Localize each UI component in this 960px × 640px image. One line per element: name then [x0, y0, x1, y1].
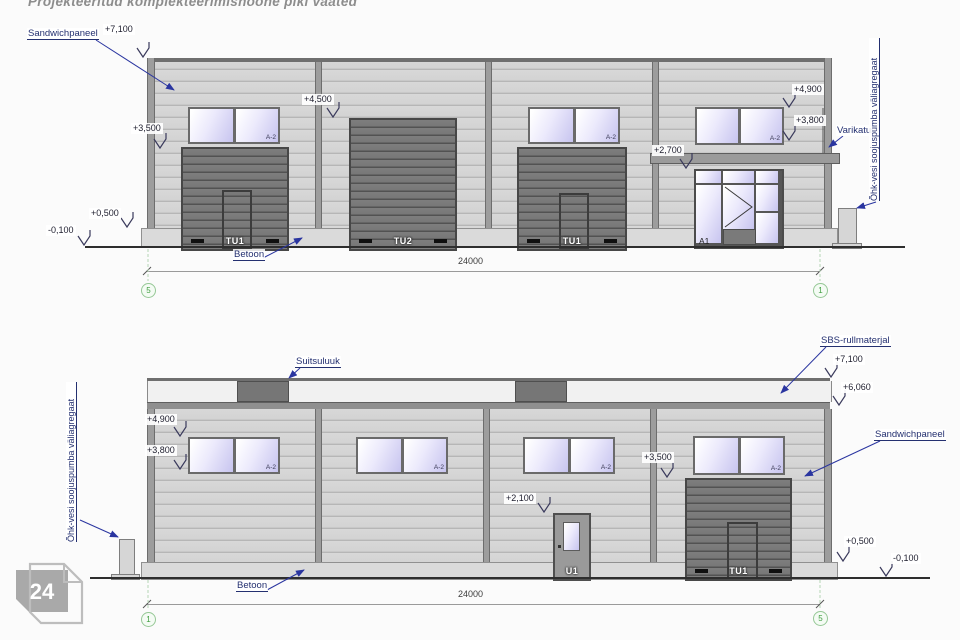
door-dash: [434, 239, 447, 243]
transom-pane: [756, 171, 778, 183]
door-handle: [558, 545, 561, 548]
door-dash: [695, 569, 708, 573]
entrance-a1: A1: [694, 169, 784, 249]
window: A-2: [188, 107, 280, 144]
window-pane: [190, 109, 233, 142]
window: A-2: [356, 437, 448, 474]
window-tag: A-2: [770, 135, 780, 142]
level-m0100: -0,100: [46, 225, 76, 236]
window-tag: A-2: [266, 464, 276, 471]
level-0500: +0,500: [89, 208, 121, 219]
heat-pump-unit: [838, 208, 857, 248]
window-pane: [190, 439, 233, 472]
door-dash: [527, 239, 540, 243]
corner-column: [147, 58, 155, 228]
level-4900: +4,900: [145, 414, 177, 425]
door-label: U1: [566, 566, 579, 576]
label-suitsuluuk: Suitsuluuk: [295, 356, 341, 368]
window: A-2: [188, 437, 280, 474]
door-u1: U1: [553, 513, 591, 581]
window-tag: A-2: [771, 465, 781, 472]
corner-column: [824, 58, 832, 228]
level-7100: +7,100: [103, 24, 135, 35]
level-3500: +3,500: [131, 123, 163, 134]
window-pane: [697, 109, 738, 143]
elevation-drawing-sheet: Projekteeritud komplekteerimishoone piki…: [0, 0, 960, 640]
grid-marker-1: 1: [141, 612, 156, 627]
label-betoon: Betoon: [233, 249, 265, 261]
door-label: TU1: [563, 236, 582, 246]
dimension-text: 24000: [458, 256, 483, 266]
entrance-door-glass: [723, 185, 754, 229]
window-tag: A-2: [434, 464, 444, 471]
grid-marker-5: 5: [813, 611, 828, 626]
door-dash: [191, 239, 204, 243]
door-label: TU1: [729, 566, 748, 576]
window-tag: A-2: [601, 464, 611, 471]
door-label: TU2: [394, 236, 413, 246]
dimension-line: [147, 271, 820, 272]
roller-door-tu1: TU1: [685, 478, 792, 581]
window: A-2: [528, 107, 620, 144]
heat-pump-unit: [119, 539, 135, 578]
column: [315, 409, 322, 562]
door-kick-panel: [723, 229, 756, 245]
smoke-hatch: [515, 381, 567, 402]
ground-line: [90, 577, 930, 579]
logo-24: 24: [16, 564, 82, 623]
smoke-hatch: [237, 381, 289, 402]
column: [650, 409, 657, 562]
column: [315, 62, 322, 228]
level-7100: +7,100: [833, 354, 865, 365]
logo-number: 24: [30, 579, 55, 604]
sidelight: [756, 185, 778, 211]
label-sbs-rullmaterjal: SBS-rullmaterjal: [820, 335, 891, 347]
grid-marker-5: 5: [141, 283, 156, 298]
door-dash: [266, 239, 279, 243]
level-4900: +4,900: [792, 84, 824, 95]
roller-door-tu1: TU1: [181, 147, 289, 251]
window: A-2: [695, 107, 784, 145]
entrance-label: A1: [699, 236, 709, 246]
door-label: TU1: [226, 236, 245, 246]
dimension-text: 24000: [458, 589, 483, 599]
sidelight: [696, 185, 721, 243]
level-0500: +0,500: [844, 536, 876, 547]
roller-door-tu1: TU1: [517, 147, 627, 251]
label-betoon: Betoon: [236, 580, 268, 592]
door-swing-mark: [723, 185, 754, 229]
grid-marker-1: 1: [813, 283, 828, 298]
window: A-2: [693, 436, 785, 475]
window-pane: [695, 438, 738, 473]
level-3800: +3,800: [145, 445, 177, 456]
level-m0100: -0,100: [891, 553, 921, 564]
level-2700: +2,700: [652, 145, 684, 156]
label-sandwichpaneel: Sandwichpaneel: [874, 429, 946, 441]
column: [485, 62, 492, 228]
level-2100: +2,100: [504, 493, 536, 504]
window-tag: A-2: [606, 134, 616, 141]
sheet-title: Projekteeritud komplekteerimishoone piki…: [28, 0, 357, 9]
label-heat-pump: Õhk-vesi soojuspumba väliagregaat: [66, 382, 77, 542]
column: [483, 409, 490, 562]
door-dash: [359, 239, 372, 243]
dimension-line: [147, 604, 820, 605]
window-pane: [530, 109, 573, 142]
corner-column: [147, 409, 155, 562]
ground-line: [85, 246, 905, 248]
door-dash: [769, 569, 782, 573]
transom-pane: [696, 171, 721, 183]
transom-pane: [723, 171, 754, 183]
window-pane: [358, 439, 401, 472]
roller-door-tu2: TU2: [349, 118, 457, 251]
door-dash: [604, 239, 617, 243]
window-pane: [525, 439, 568, 472]
level-6060: +6,060: [841, 382, 873, 393]
label-heat-pump: Õhk-vesi soojuspumba väliagregaat: [869, 38, 880, 201]
window: A-2: [523, 437, 615, 474]
label-sandwichpaneel: Sandwichpaneel: [27, 28, 99, 40]
sidelight: [756, 213, 778, 243]
window-tag: A-2: [266, 134, 276, 141]
corner-column: [824, 409, 832, 562]
level-3500: +3,500: [642, 452, 674, 463]
level-4500: +4,500: [302, 94, 334, 105]
door-glass: [563, 522, 580, 551]
level-3800: +3,800: [794, 115, 826, 126]
